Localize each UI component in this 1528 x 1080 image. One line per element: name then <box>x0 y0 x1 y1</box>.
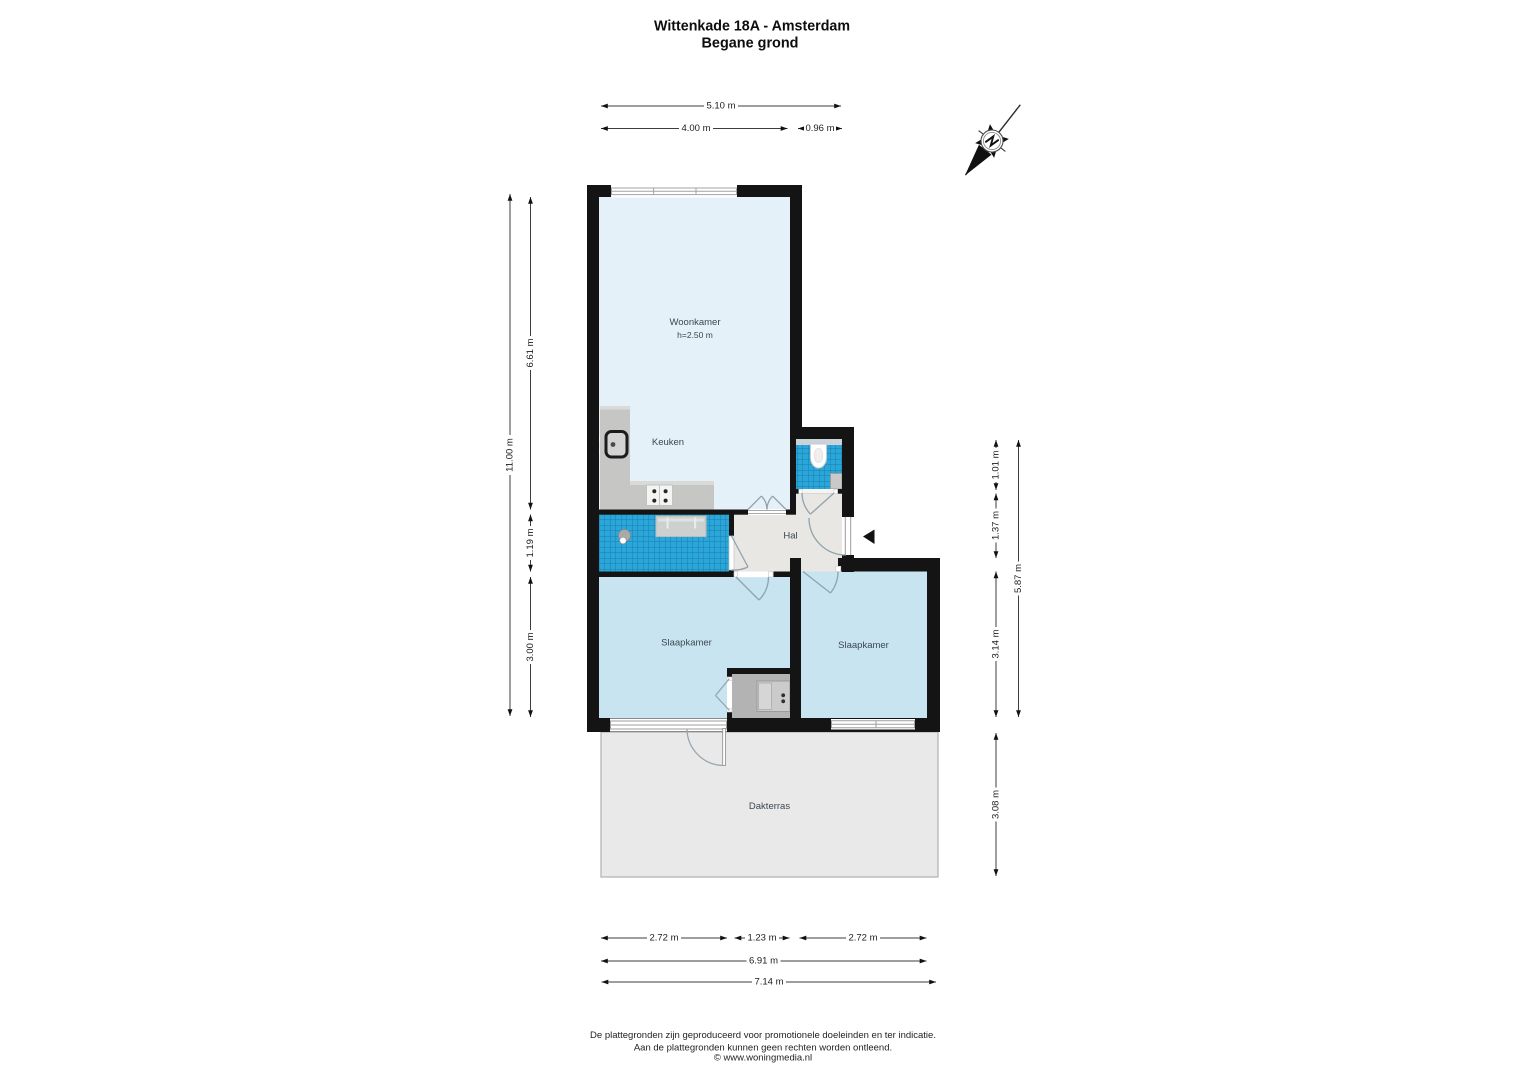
svg-text:0.96 m: 0.96 m <box>805 123 834 134</box>
svg-text:1.37 m: 1.37 m <box>991 511 1002 540</box>
svg-text:6.91 m: 6.91 m <box>749 956 778 967</box>
svg-text:Slaapkamer: Slaapkamer <box>661 638 712 649</box>
svg-text:1.01 m: 1.01 m <box>991 450 1002 479</box>
svg-text:© www.woningmedia.nl: © www.woningmedia.nl <box>714 1053 812 1064</box>
svg-text:7.14 m: 7.14 m <box>754 977 783 988</box>
svg-text:h=2.50 m: h=2.50 m <box>677 330 713 340</box>
svg-text:Woonkamer: Woonkamer <box>669 317 720 328</box>
svg-text:Dakterras: Dakterras <box>749 801 790 812</box>
svg-text:6.61 m: 6.61 m <box>525 338 536 367</box>
svg-text:3.14 m: 3.14 m <box>991 629 1002 658</box>
svg-text:5.87 m: 5.87 m <box>1013 564 1024 593</box>
svg-text:1.19 m: 1.19 m <box>525 528 536 557</box>
svg-text:Hal: Hal <box>783 531 797 542</box>
svg-text:2.72 m: 2.72 m <box>649 933 678 944</box>
svg-text:Wittenkade 18A - Amsterdam: Wittenkade 18A - Amsterdam <box>654 18 850 35</box>
svg-text:Keuken: Keuken <box>652 437 684 448</box>
svg-text:Slaapkamer: Slaapkamer <box>838 640 889 651</box>
svg-text:4.00 m: 4.00 m <box>681 123 710 134</box>
svg-text:3.08 m: 3.08 m <box>991 790 1002 819</box>
svg-text:3.00 m: 3.00 m <box>525 632 536 661</box>
svg-text:1.23 m: 1.23 m <box>747 933 776 944</box>
svg-text:11.00 m: 11.00 m <box>505 438 516 472</box>
svg-text:De plattegronden zijn geproduc: De plattegronden zijn geproduceerd voor … <box>590 1030 936 1041</box>
svg-text:5.10 m: 5.10 m <box>706 101 735 112</box>
svg-text:2.72 m: 2.72 m <box>848 933 877 944</box>
svg-text:Begane grond: Begane grond <box>702 35 799 52</box>
